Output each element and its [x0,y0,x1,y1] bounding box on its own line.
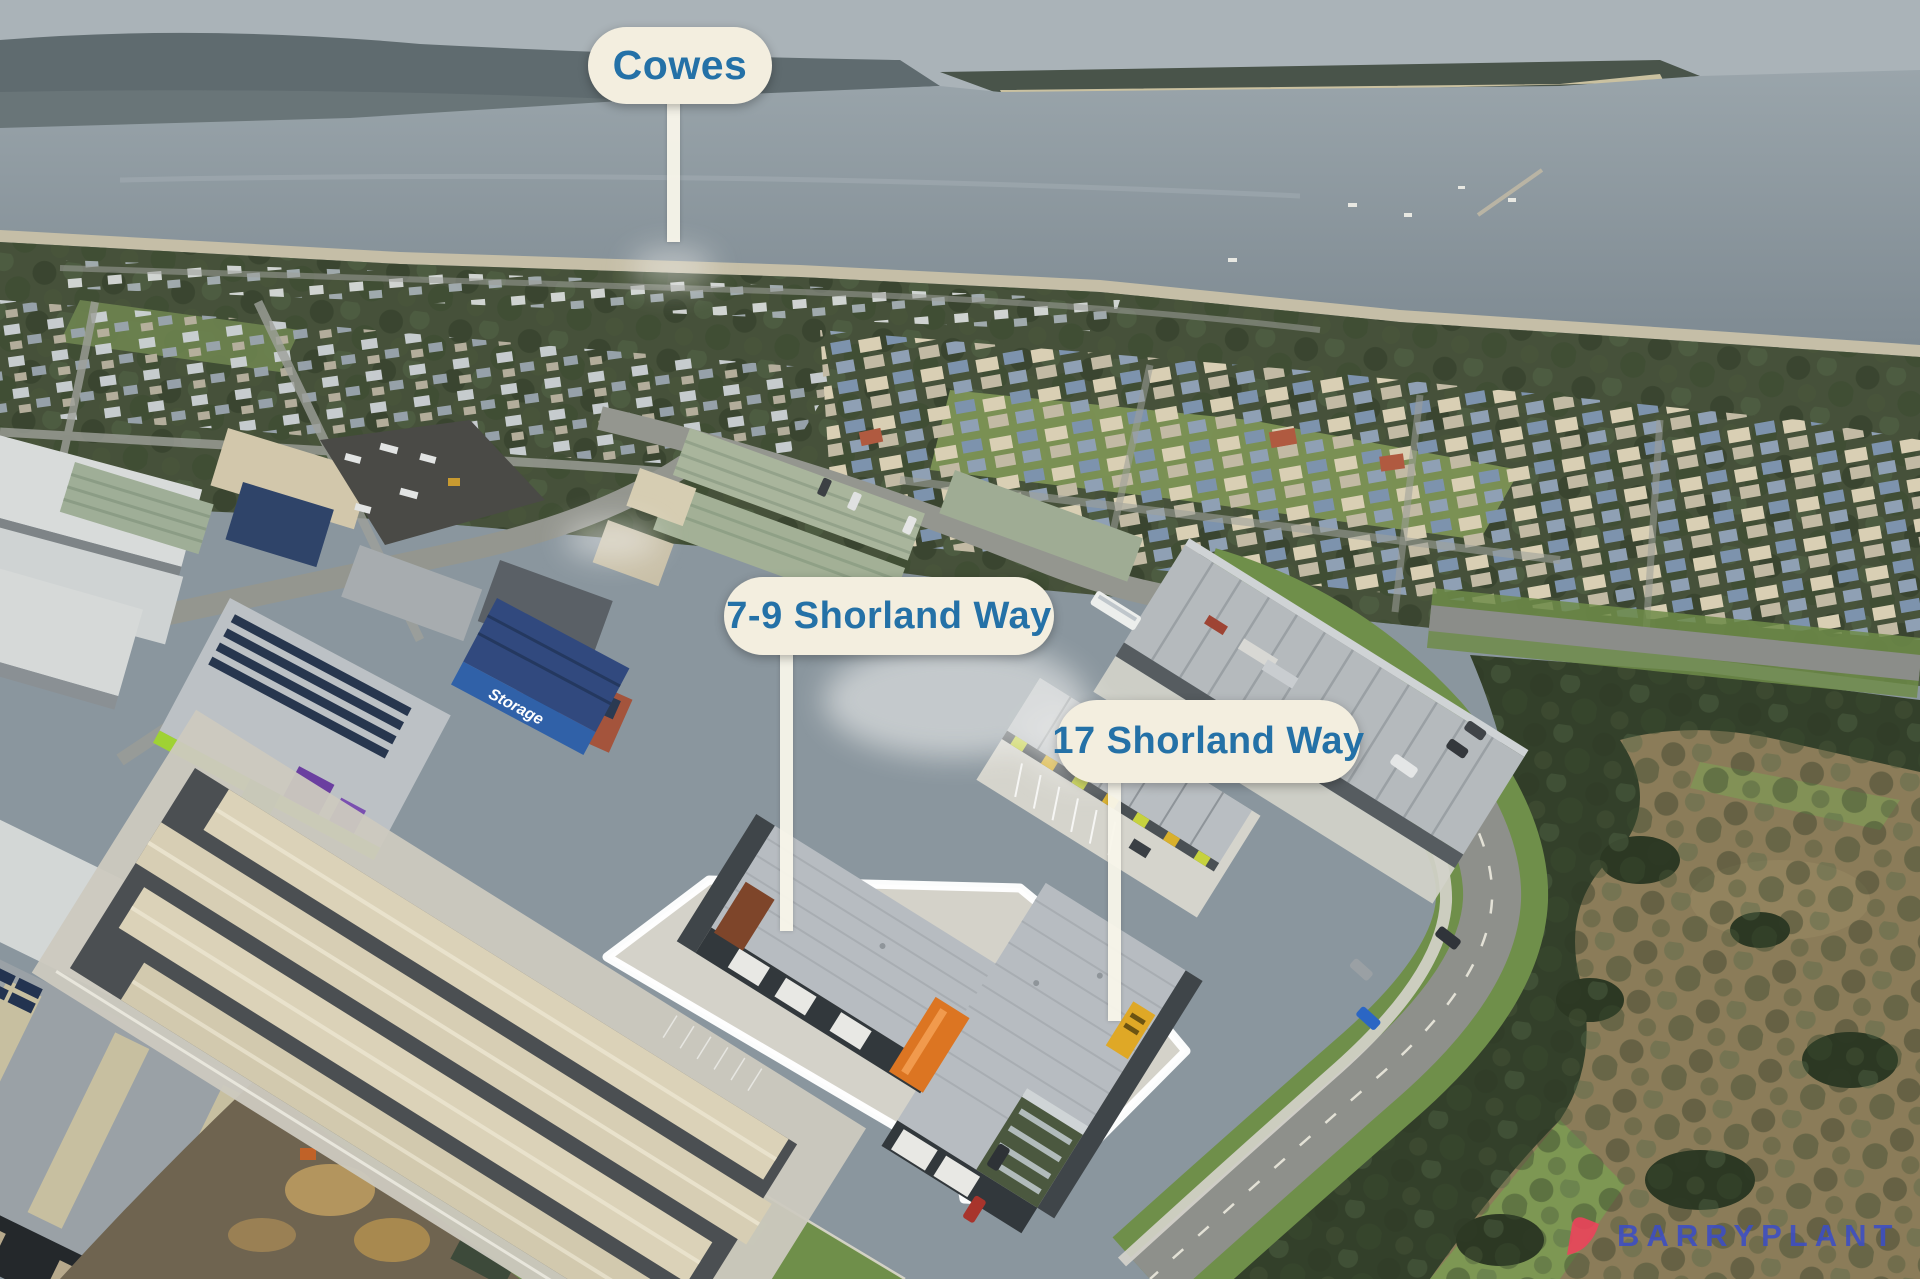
mulch-pile-2 [354,1218,430,1262]
barry-plant-logo: BARRYPLANT [1563,1208,1908,1264]
shorland-79-pointer-stem [780,651,793,931]
label-17-text: 17 Shorland Way [1052,720,1364,763]
label-7-9-shorland-way: 7-9 Shorland Way [724,577,1054,655]
log-pile [228,1218,296,1252]
label-7-9-text: 7-9 Shorland Way [726,595,1051,638]
barry-plant-logo-text: BARRYPLANT [1617,1218,1899,1254]
barry-plant-logo-mark-icon [1563,1213,1603,1259]
shorland-17-pointer-stem [1108,779,1121,1021]
aerial-property-photo: Storage [0,0,1920,1279]
cowes-pointer-stem [667,100,680,242]
label-cowes: Cowes [588,27,772,104]
label-17-shorland-way: 17 Shorland Way [1057,700,1360,783]
label-cowes-text: Cowes [613,42,748,89]
